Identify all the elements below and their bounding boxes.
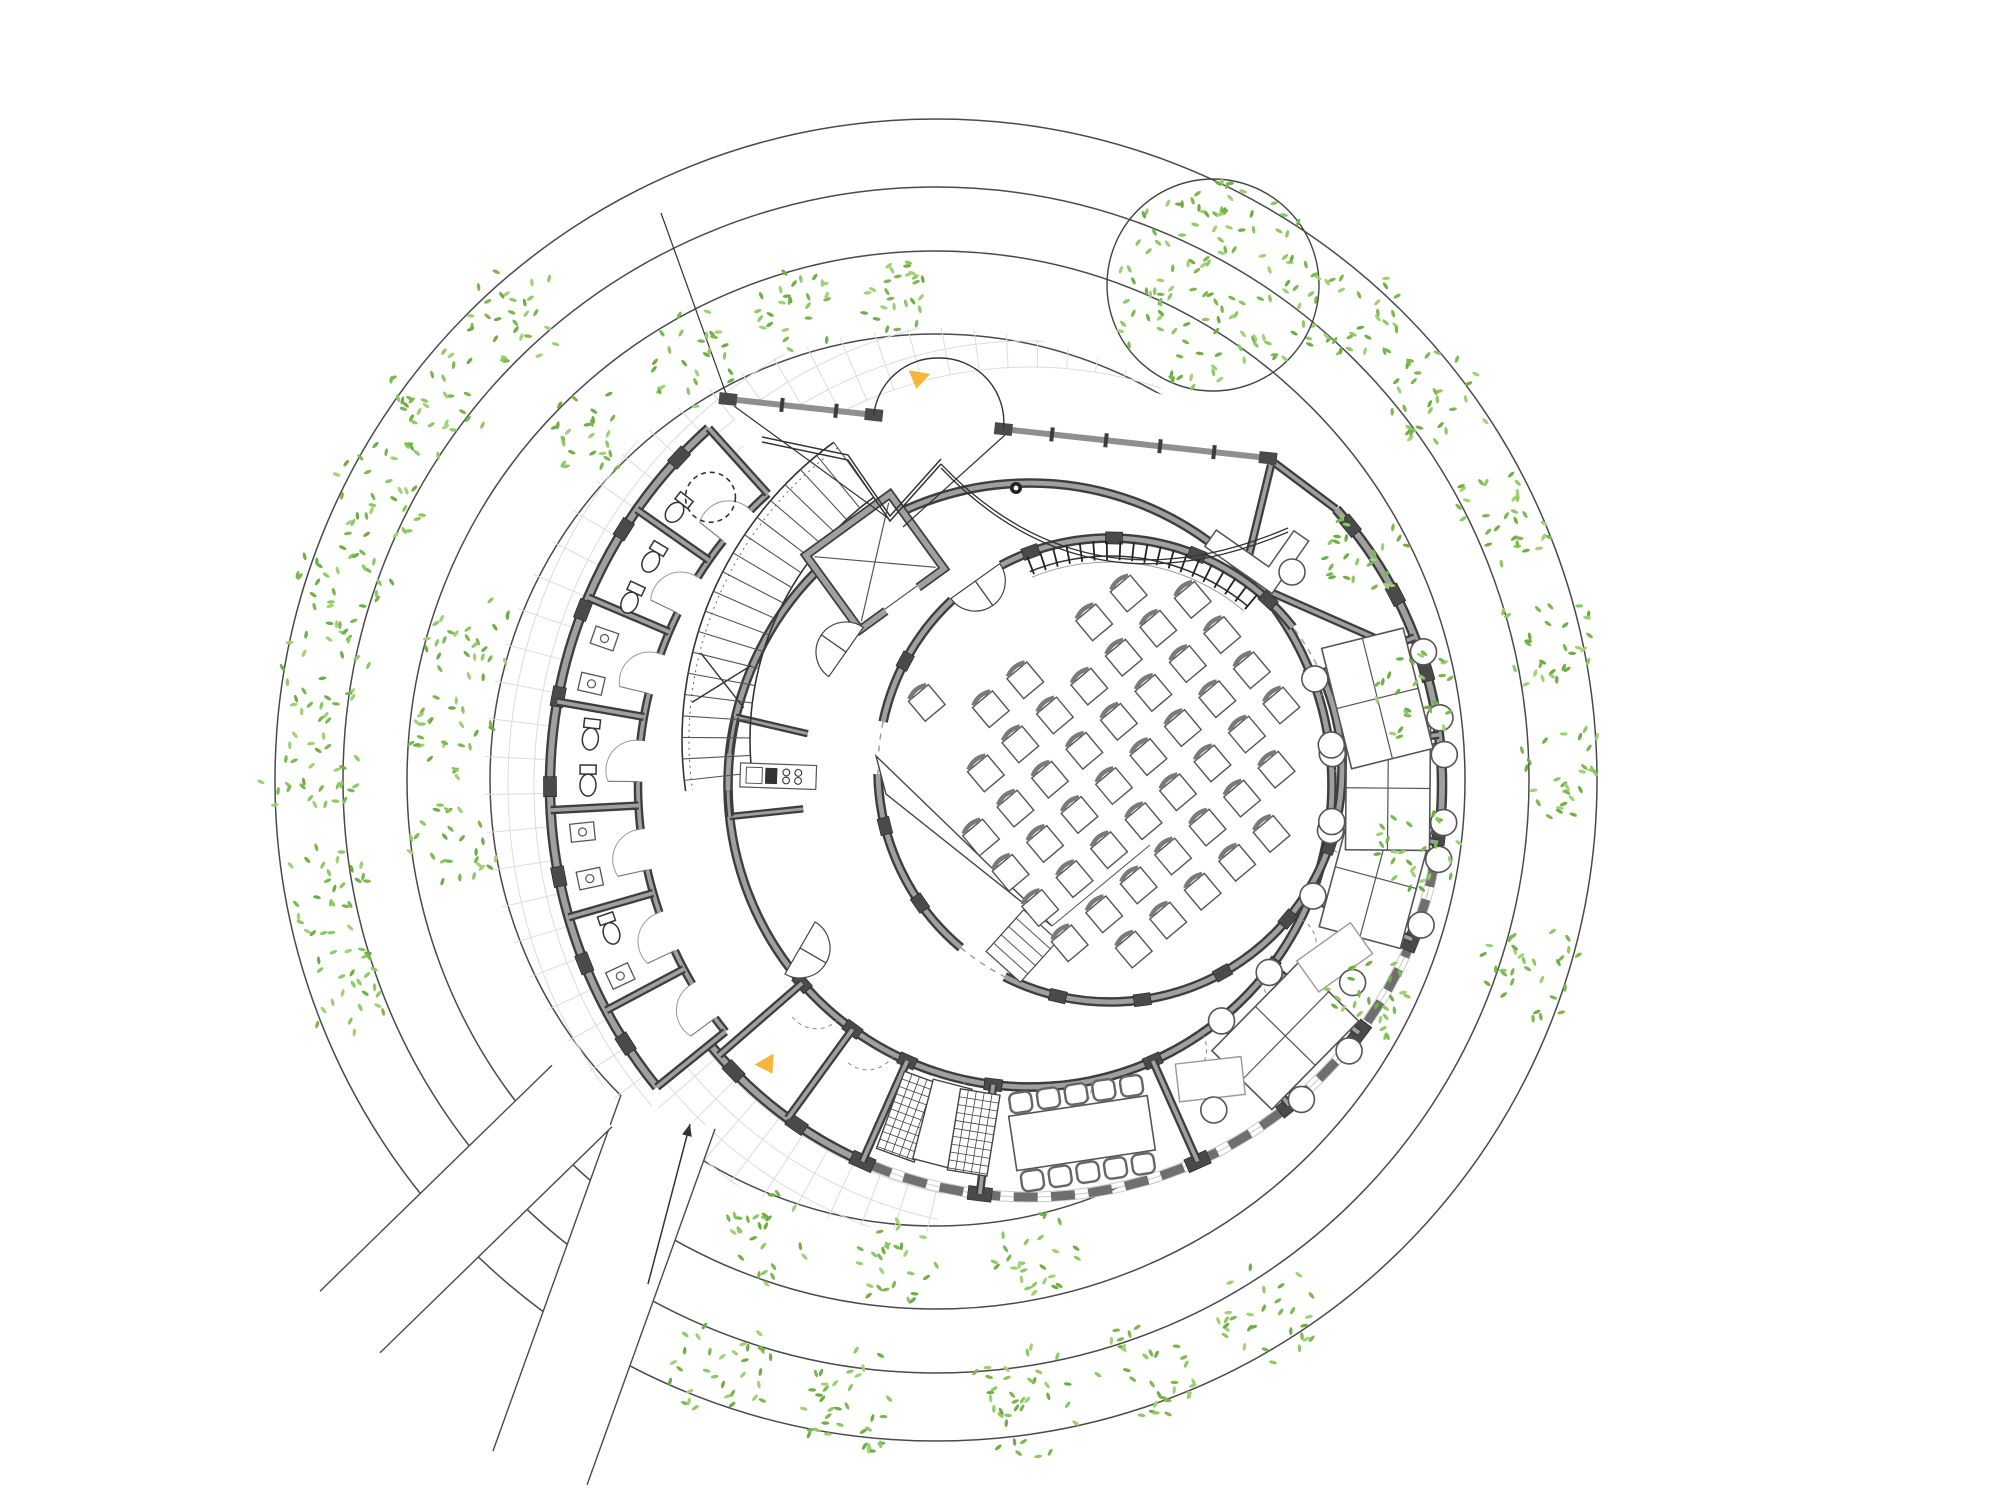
tree	[1107, 178, 1322, 392]
tree	[550, 391, 621, 471]
tree	[971, 1343, 1080, 1459]
tree	[332, 441, 426, 539]
floor-plan-page	[0, 0, 2000, 1500]
tree	[257, 731, 361, 809]
tree	[315, 947, 386, 1037]
tree	[1094, 1324, 1198, 1418]
tree	[1215, 1263, 1315, 1365]
tree	[1302, 274, 1402, 357]
tree	[799, 1346, 893, 1454]
floor-plan-canvas	[0, 0, 2000, 1500]
tree	[406, 803, 498, 886]
tree	[753, 269, 831, 354]
walkway-paths	[320, 1065, 715, 1485]
tree	[1501, 602, 1594, 687]
tree	[295, 531, 395, 629]
tree	[990, 1211, 1082, 1297]
tree	[406, 694, 496, 781]
tree	[667, 1322, 772, 1411]
tree	[466, 269, 560, 363]
tree	[279, 628, 372, 725]
tree	[389, 347, 486, 459]
tree	[1519, 725, 1599, 820]
tree	[287, 843, 371, 937]
tree	[860, 260, 925, 334]
